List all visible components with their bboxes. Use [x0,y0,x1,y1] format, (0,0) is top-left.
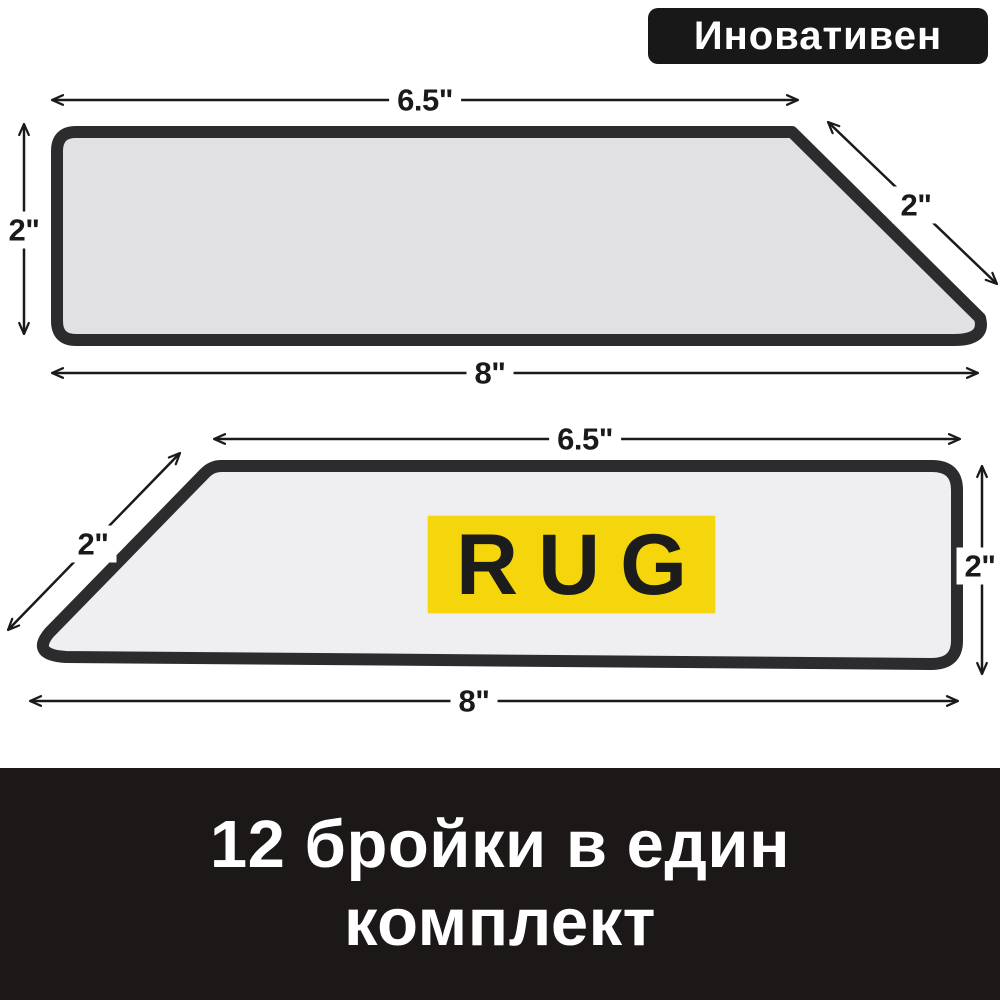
dim-label-top-strip-top-width: 6.5" [389,82,461,119]
caption-line-1: 12 бройки в един [210,806,790,884]
dim-label-top-strip-height: 2" [1,212,48,249]
caption-band: 12 бройки в един комплект [0,768,1000,1000]
dim-label-top-strip-bottom-width: 8" [467,355,514,392]
badge-innovative: Иновативен [648,8,988,64]
dim-label-top-strip-slant: 2" [893,187,940,224]
rug-sticker-text: RUG [436,522,707,608]
dim-label-bottom-strip-bottom-width: 8" [451,683,498,720]
product-image: Иновативен 6.5" 2" 2" 8" 6.5" 2" 2" 8" R… [0,0,1000,1000]
dim-label-bottom-strip-height: 2" [957,548,1000,585]
rug-sticker: RUG [428,516,715,613]
dim-label-bottom-strip-top-width: 6.5" [549,421,621,458]
strip-top-shape [57,132,981,340]
badge-label: Иновативен [694,16,942,56]
dim-label-bottom-strip-slant: 2" [70,526,117,563]
caption-line-2: комплект [344,884,656,962]
